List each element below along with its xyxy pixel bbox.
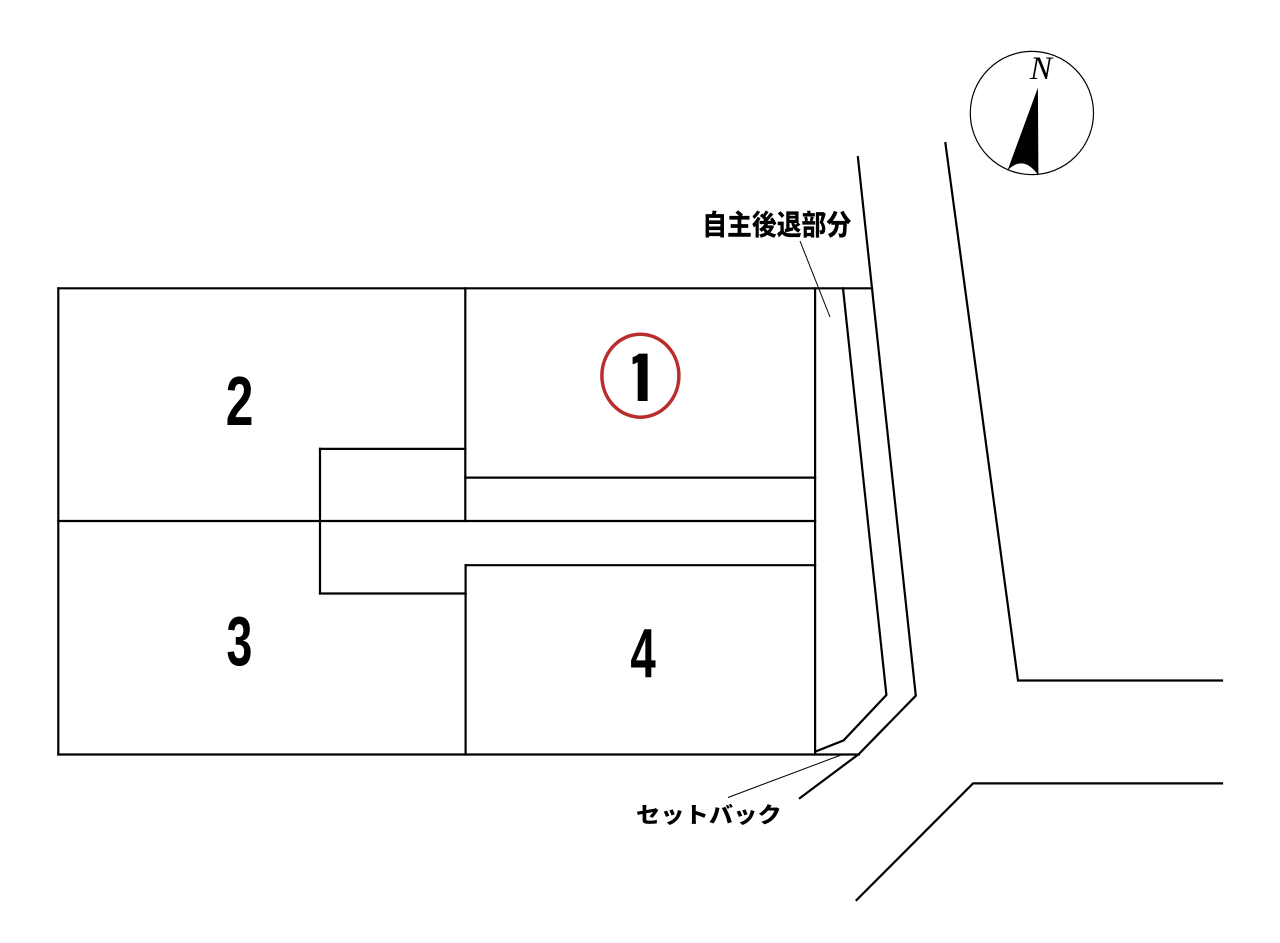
svg-text:2: 2 bbox=[226, 361, 254, 439]
svg-text:3: 3 bbox=[226, 601, 252, 680]
svg-text:N: N bbox=[1029, 51, 1054, 87]
svg-text:4: 4 bbox=[630, 615, 655, 693]
